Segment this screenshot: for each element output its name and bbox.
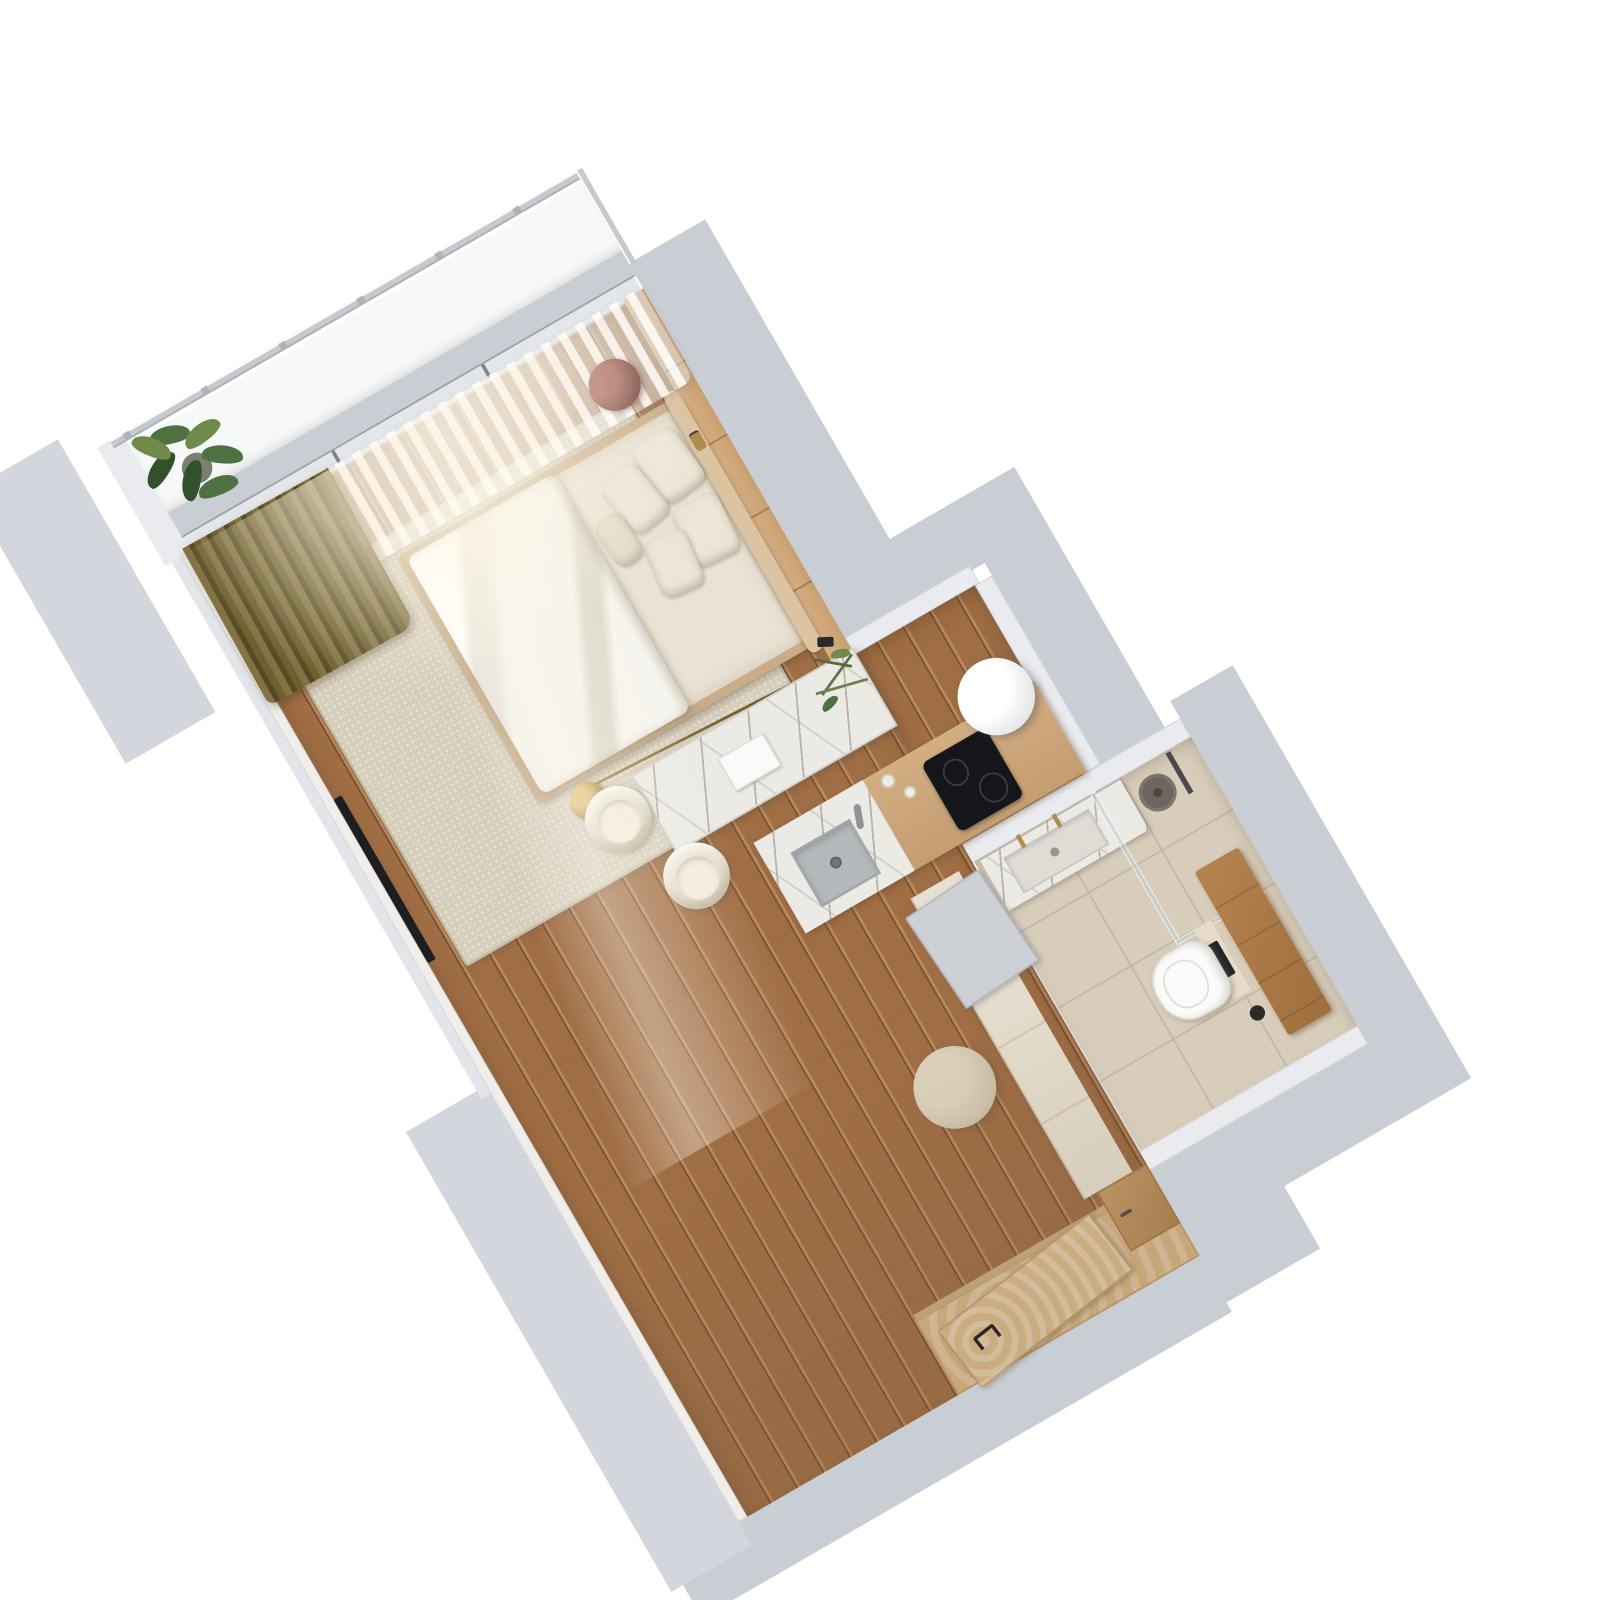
apartment-plan	[75, 33, 1454, 1567]
floorplan-scene	[0, 0, 1600, 1600]
gold-faucet	[1051, 813, 1062, 828]
shower-head-center	[1152, 786, 1164, 798]
railing-post	[356, 296, 366, 306]
railing-post	[278, 341, 288, 351]
railing-post	[512, 206, 522, 216]
cabinet-handle	[1120, 1208, 1133, 1217]
gold-faucet	[1016, 834, 1027, 849]
railing-post	[434, 251, 444, 261]
sprig-leaf	[820, 693, 840, 713]
entry-door-handle	[972, 1323, 1001, 1351]
toilet-seat-ring	[1155, 952, 1217, 1016]
sprig	[816, 678, 869, 695]
sink-drain	[828, 854, 844, 870]
